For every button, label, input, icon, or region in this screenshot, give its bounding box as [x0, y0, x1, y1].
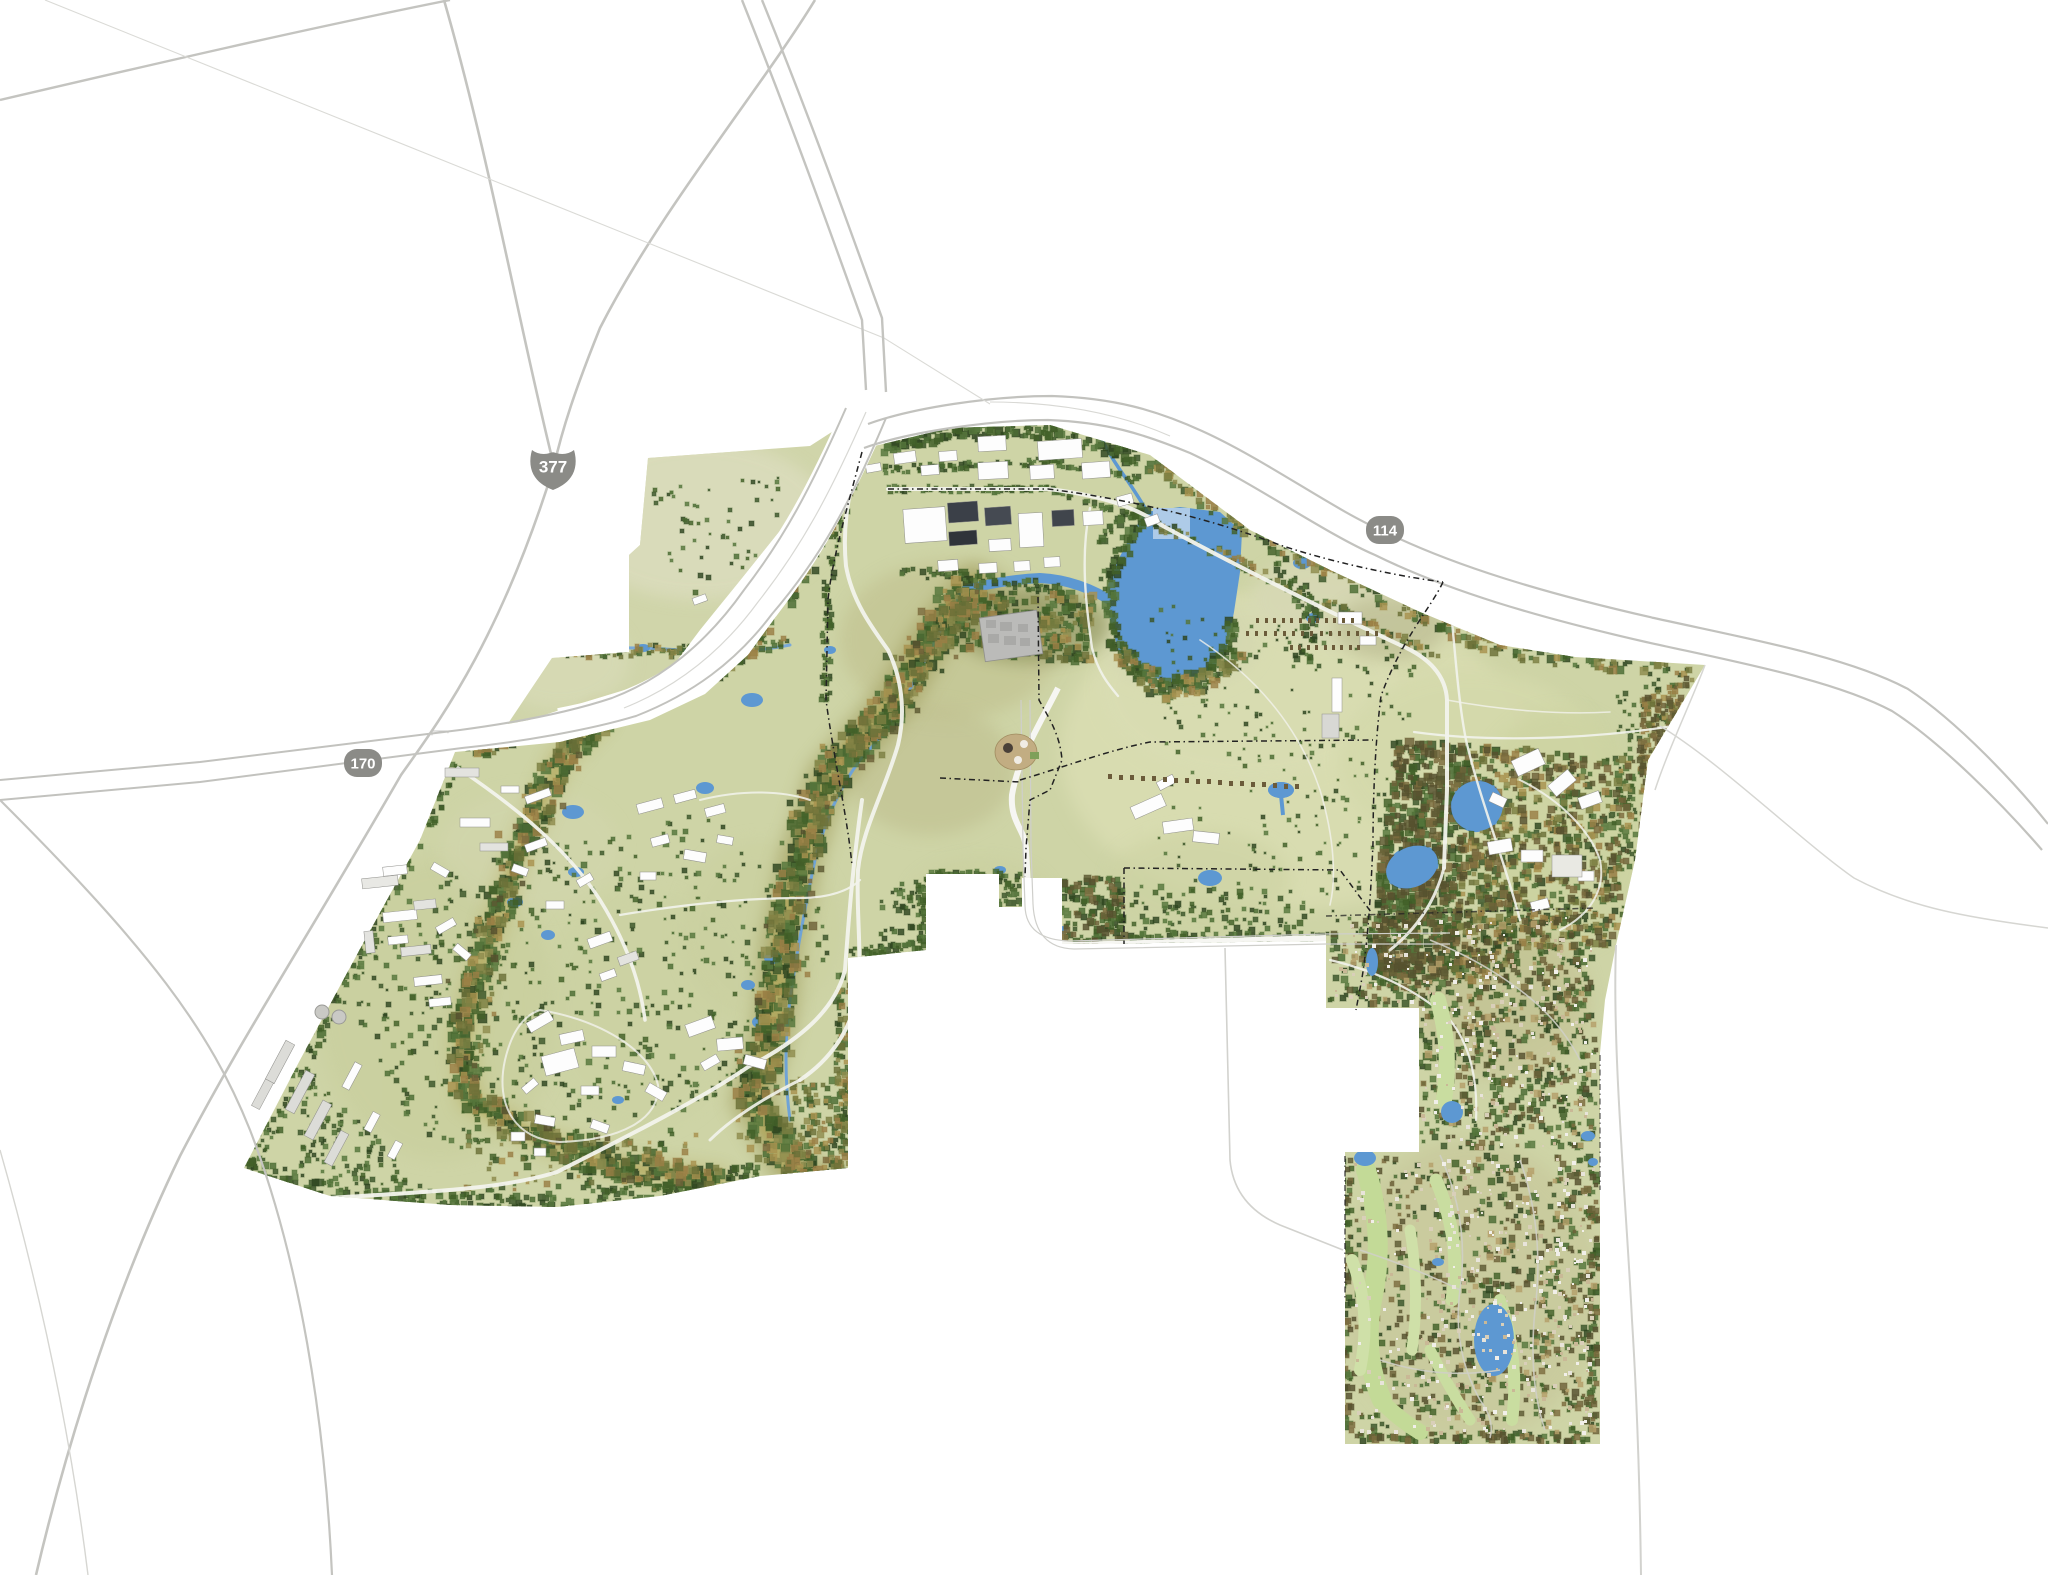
svg-text:114: 114: [1373, 523, 1398, 540]
svg-text:377: 377: [539, 458, 567, 477]
svg-text:170: 170: [350, 756, 375, 773]
